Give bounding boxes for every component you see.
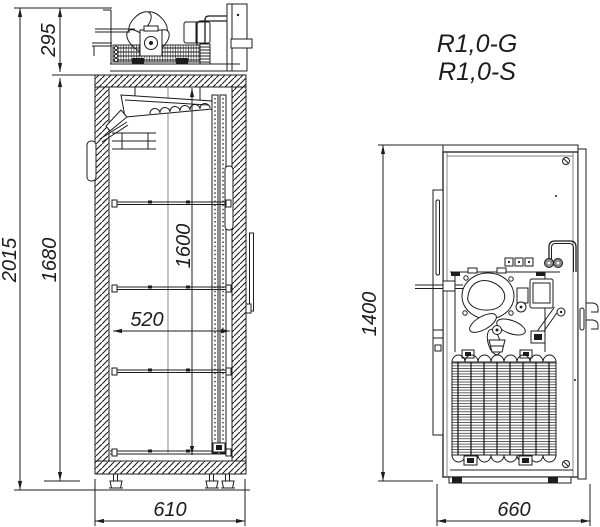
door-liner-molding (225, 166, 233, 230)
relay-box (516, 279, 553, 312)
top-wall (95, 75, 246, 87)
extension-lines-rear (378, 145, 590, 526)
door-handle (246, 233, 254, 313)
dim-label-2015: 2015 (0, 237, 21, 283)
base-rails (449, 470, 573, 483)
technical-drawing-page: 2015 295 1680 1600 520 610 R1,0 (0, 0, 600, 527)
model-label-g: R1,0-G (437, 30, 518, 58)
rear-view: 1400 660 (359, 145, 598, 526)
back-wall (95, 87, 109, 461)
dimension-overall-width: 660 (437, 499, 590, 523)
compressor-side (140, 26, 162, 56)
feet (109, 474, 235, 488)
dimension-machinery-height: 295 (38, 8, 62, 72)
foot (109, 474, 123, 488)
foot (205, 474, 219, 488)
door-edge-strip (433, 190, 443, 435)
model-labels: R1,0-G R1,0-S (437, 30, 518, 86)
mounting-hooks (586, 303, 598, 329)
refrigerator-drawing: 2015 295 1680 1600 520 610 R1,0 (0, 0, 600, 527)
pipe-loop (545, 241, 577, 272)
suction-coil-icon (200, 44, 210, 64)
dimension-overall-depth: 610 (95, 499, 245, 523)
filter-dryer (531, 307, 565, 343)
dim-label-295: 295 (38, 22, 60, 57)
model-label-s: R1,0-S (438, 58, 516, 86)
compressor-rear (462, 273, 514, 319)
machinery-base (110, 64, 246, 71)
dimension-body-height: 1680 (39, 78, 62, 481)
dimension-overall-height: 2015 (0, 8, 22, 490)
dim-label-520: 520 (130, 309, 163, 331)
door-section (232, 87, 246, 461)
side-section-view: 2015 295 1680 1600 520 610 (0, 4, 254, 526)
terminal-blocks (505, 258, 533, 266)
machinery-compartment (92, 4, 252, 71)
dim-label-1400: 1400 (359, 292, 381, 337)
condenser-rear (452, 350, 556, 465)
foot (221, 474, 235, 488)
hinge-plate (87, 141, 96, 181)
dim-label-1600: 1600 (173, 224, 195, 269)
dim-label-1680: 1680 (39, 238, 61, 283)
dim-label-610: 610 (153, 499, 186, 521)
bottom-wall (95, 461, 246, 474)
rear-panel-side (227, 4, 252, 71)
dim-label-660: 660 (497, 499, 530, 521)
dimension-unit-height: 1400 (359, 145, 385, 481)
